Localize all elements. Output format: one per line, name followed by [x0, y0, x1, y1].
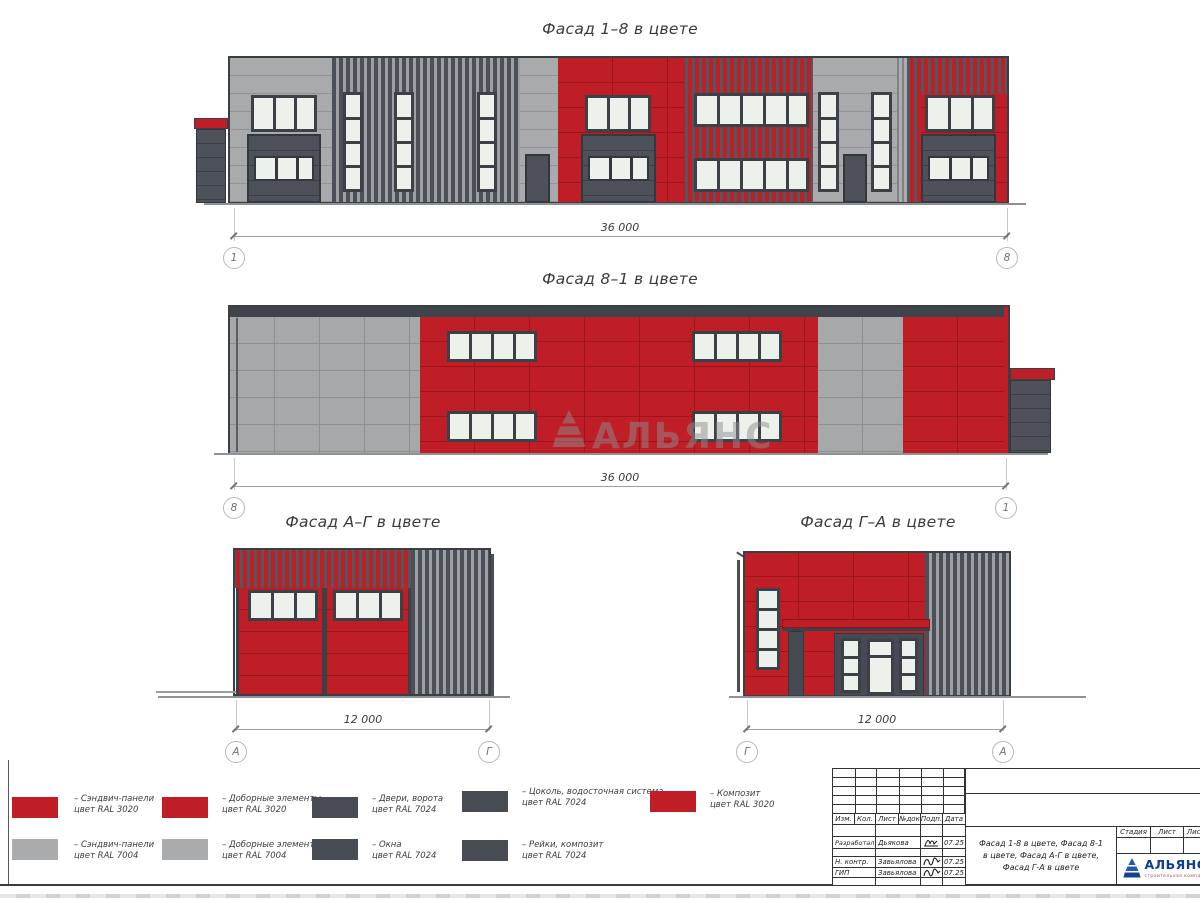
titleblock-revision-grid [832, 768, 965, 814]
dimension-line [234, 236, 1008, 237]
legend-label-line: цвет RAL 7024 [522, 798, 586, 808]
legend-label-line: цвет RAL 7004 [74, 851, 138, 861]
dimension-text: 36 000 [520, 221, 720, 234]
signature-icon [922, 868, 942, 878]
axis-bubble: 8 [996, 247, 1018, 269]
corner-trim [491, 554, 494, 696]
legend-label: – Окнацвет RAL 7024 [372, 840, 436, 862]
legend-label-line: – Рейки, композит [522, 840, 603, 850]
dimension-text: 36 000 [520, 471, 720, 484]
legend-label-line: цвет RAL 7024 [372, 851, 436, 861]
legend-label-line: цвет RAL 3020 [222, 805, 286, 815]
building-outline [233, 548, 491, 696]
facade-1-8-title: Фасад 1–8 в цвете [470, 20, 770, 38]
axis-bubble: Г [478, 741, 500, 763]
legend-label-line: – Композит [710, 789, 760, 799]
titleblock-cell [875, 877, 921, 886]
ground-ledge [156, 691, 236, 693]
legend-label-line: – Доборные элементы [222, 840, 321, 850]
legend-swatch [312, 797, 358, 818]
signature-icon [922, 837, 942, 848]
downspout [737, 560, 740, 692]
legend-label-line: – Доборные элементы [222, 794, 321, 804]
legend-label-line: цвет RAL 3020 [710, 800, 774, 810]
annex-red-band [1010, 368, 1055, 380]
ground-line [204, 203, 1026, 205]
building-outline [228, 56, 1009, 204]
facade-8-1-title: Фасад 8–1 в цвете [470, 270, 770, 288]
company-logo-icon [1123, 857, 1141, 881]
annex-panel [1010, 380, 1051, 453]
legend-label: – Цоколь, водосточная системацвет RAL 70… [522, 787, 663, 809]
dimension-tick [485, 725, 492, 732]
legend-label: – Сэндвич-панелицвет RAL 3020 [74, 794, 154, 816]
axis-bubble: 1 [223, 247, 245, 269]
titleblock-cell [920, 877, 943, 886]
legend-swatch [462, 791, 508, 812]
drawing-sheet: Фасад 1–8 в цвете [0, 0, 1200, 900]
annex-red-band [194, 118, 228, 129]
ground-line [729, 696, 1086, 698]
company-logo-subtitle: строительная компания [1145, 874, 1200, 879]
titleblock-doc-code-cell [965, 768, 1200, 794]
watermark: АЛЬЯНС [552, 407, 773, 455]
titleblock-cell [1116, 837, 1151, 854]
doc-title-line: Фасад Г-А в цвете [1003, 862, 1079, 874]
legend-label: – Рейки, композитцвет RAL 7024 [522, 840, 603, 862]
legend-swatch [162, 797, 208, 818]
axis-bubble: Г [736, 741, 758, 763]
legend-label-line: – Сэндвич-панели [74, 840, 154, 850]
facade-a-g-title: Фасад А–Г в цвете [238, 513, 488, 531]
titleblock-cell [965, 793, 1200, 827]
legend-label-line: – Двери, ворота [372, 794, 443, 804]
legend-swatch [650, 791, 696, 812]
legend-swatch [12, 839, 58, 860]
legend-label: – Доборные элементыцвет RAL 7004 [222, 840, 321, 862]
axis-bubble: А [225, 741, 247, 763]
dimension-line [747, 729, 1003, 730]
titleblock-cell [832, 877, 876, 886]
titleblock-cell [942, 877, 966, 886]
legend-label: – Двери, воротацвет RAL 7024 [372, 794, 443, 816]
axis-bubble: А [992, 741, 1014, 763]
titleblock-cell [1150, 837, 1184, 854]
signature-icon [922, 857, 942, 867]
doc-title-line: в цвете, Фасад А-Г в цвете, [983, 850, 1099, 862]
legend-label: – Композитцвет RAL 3020 [710, 789, 774, 811]
titleblock-cell [1183, 837, 1200, 854]
legend-label-line: цвет RAL 7024 [372, 805, 436, 815]
watermark-text: АЛЬЯНС [592, 419, 773, 455]
legend-label-line: цвет RAL 7004 [222, 851, 286, 861]
ground-line [158, 696, 510, 698]
building-outline [743, 551, 1011, 697]
legend-label: – Доборные элементыцвет RAL 3020 [222, 794, 321, 816]
legend-label: – Сэндвич-панелицвет RAL 7004 [74, 840, 154, 862]
annex-panel [196, 129, 226, 203]
legend-label-line: цвет RAL 7024 [522, 851, 586, 861]
dimension-text: 12 000 [263, 713, 463, 726]
dimension-tick [999, 725, 1006, 732]
legend-swatch [462, 840, 508, 861]
dimension-text: 12 000 [777, 713, 977, 726]
company-logo-text: АЛЬЯНС [1145, 857, 1200, 872]
legend-label-line: цвет RAL 3020 [74, 805, 138, 815]
legend-swatch [12, 797, 58, 818]
page-edge-strip [0, 894, 1200, 898]
facade-g-a-title: Фасад Г–А в цвете [753, 513, 1003, 531]
legend-swatch [162, 839, 208, 860]
dimension-line [234, 486, 1006, 487]
legend-label-line: – Сэндвич-панели [74, 794, 154, 804]
dimension-line [236, 729, 489, 730]
titleblock-doc-title: Фасад 1-8 в цвете, Фасад 8-1 в цвете, Фа… [965, 826, 1117, 885]
legend-swatch [312, 839, 358, 860]
watermark-triangle-icon [552, 407, 586, 455]
legend-label-line: – Цоколь, водосточная система [522, 787, 663, 797]
doc-title-line: Фасад 1-8 в цвете, Фасад 8-1 [979, 838, 1103, 850]
sheet-border-left [8, 760, 9, 885]
legend-label-line: – Окна [372, 840, 402, 850]
titleblock-logo-cell: АЛЬЯНС строительная компания [1116, 853, 1200, 885]
